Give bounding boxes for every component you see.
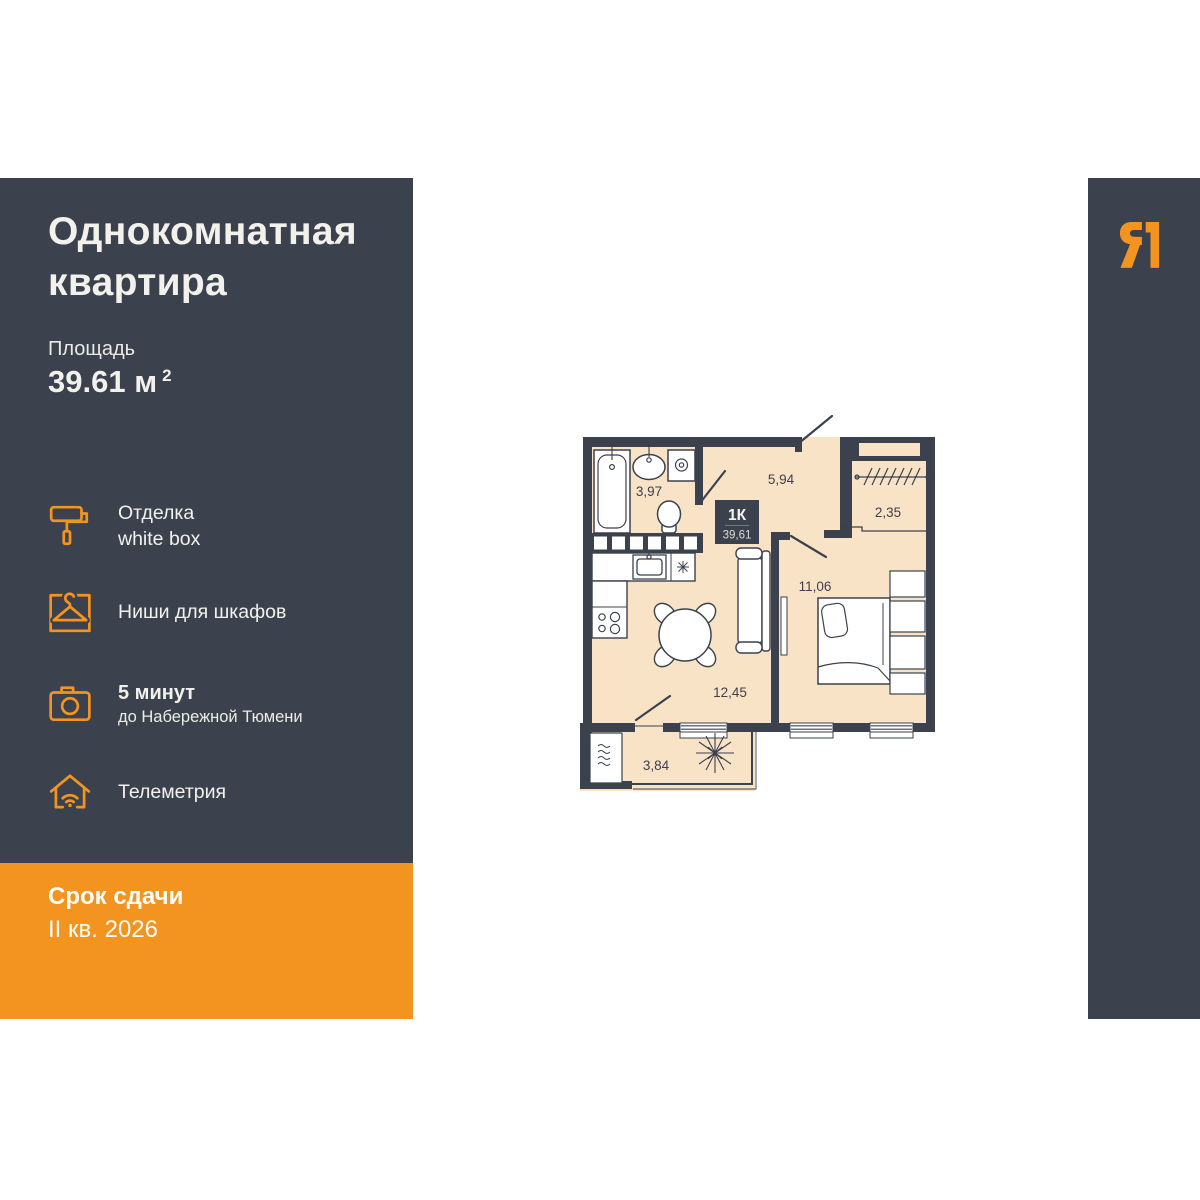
flyer-page: Однокомнатная квартира Площадь 39.61 м2 …	[0, 0, 1200, 1200]
feature-embankment: 5 минут до Набережной Тюмени	[44, 678, 303, 730]
feature-line: Отделка	[118, 500, 200, 526]
room-label-bathroom: 3,97	[636, 484, 662, 499]
area-label: Площадь	[48, 338, 135, 361]
washing-machine	[668, 450, 695, 481]
feature-text: Ниши для шкафов	[118, 599, 286, 625]
dining-table	[650, 599, 720, 671]
floor-plan: 1К 39,61 3,97 5,94 2,35 11,06 12,45 3,84	[578, 415, 938, 795]
room-label-hallway: 5,94	[768, 472, 795, 487]
hanger-icon	[44, 586, 96, 638]
developer-logo-icon	[1119, 220, 1161, 273]
sofa	[736, 548, 770, 653]
page-title: Однокомнатная квартира	[48, 206, 357, 309]
feature-line: до Набережной Тюмени	[118, 706, 303, 728]
tv-board	[781, 597, 787, 655]
feature-text: 5 минут до Набережной Тюмени	[118, 680, 303, 728]
area-number: 39.61 м	[48, 364, 157, 399]
room-label-balcony: 3,84	[643, 758, 670, 773]
unit-label-box: 1К 39,61	[715, 500, 759, 544]
balcony-heater	[590, 733, 622, 783]
unit-type: 1К	[728, 507, 747, 524]
house-wifi-icon	[44, 766, 96, 818]
feature-finishing: Отделка white box	[44, 500, 200, 552]
fridge-snowflake	[677, 561, 689, 573]
bedroom-shelves	[890, 571, 925, 694]
room-label-wardrobe: 2,35	[875, 505, 901, 520]
deadline-block: Срок сдачи II кв. 2026	[0, 863, 413, 1019]
feature-text: Отделка white box	[118, 500, 200, 552]
room-label-bedroom: 11,06	[799, 579, 832, 594]
paint-roller-icon	[44, 500, 96, 552]
title-line2: квартира	[48, 257, 357, 308]
wall-niche	[859, 443, 920, 456]
brand-panel	[1088, 178, 1200, 1019]
bed	[818, 598, 890, 684]
bathtub	[594, 441, 630, 533]
deadline-label: Срок сдачи	[48, 883, 183, 911]
deadline-value: II кв. 2026	[48, 916, 158, 944]
feature-text: Телеметрия	[118, 779, 226, 805]
camera-icon	[44, 678, 96, 730]
area-superscript: 2	[162, 366, 171, 385]
floor-plan-svg: 1К 39,61 3,97 5,94 2,35 11,06 12,45 3,84	[578, 415, 938, 795]
feature-niches: Ниши для шкафов	[44, 586, 286, 638]
feature-line: 5 минут	[118, 680, 303, 706]
feature-telemetry: Телеметрия	[44, 766, 226, 818]
area-value: 39.61 м2	[48, 364, 172, 400]
room-label-kitchen-living: 12,45	[713, 685, 747, 700]
unit-area: 39,61	[723, 530, 752, 542]
title-line1: Однокомнатная	[48, 206, 357, 257]
feature-line: white box	[118, 526, 200, 552]
feature-line: Телеметрия	[118, 779, 226, 805]
info-panel: Однокомнатная квартира Площадь 39.61 м2 …	[0, 178, 413, 863]
feature-line: Ниши для шкафов	[118, 599, 286, 625]
